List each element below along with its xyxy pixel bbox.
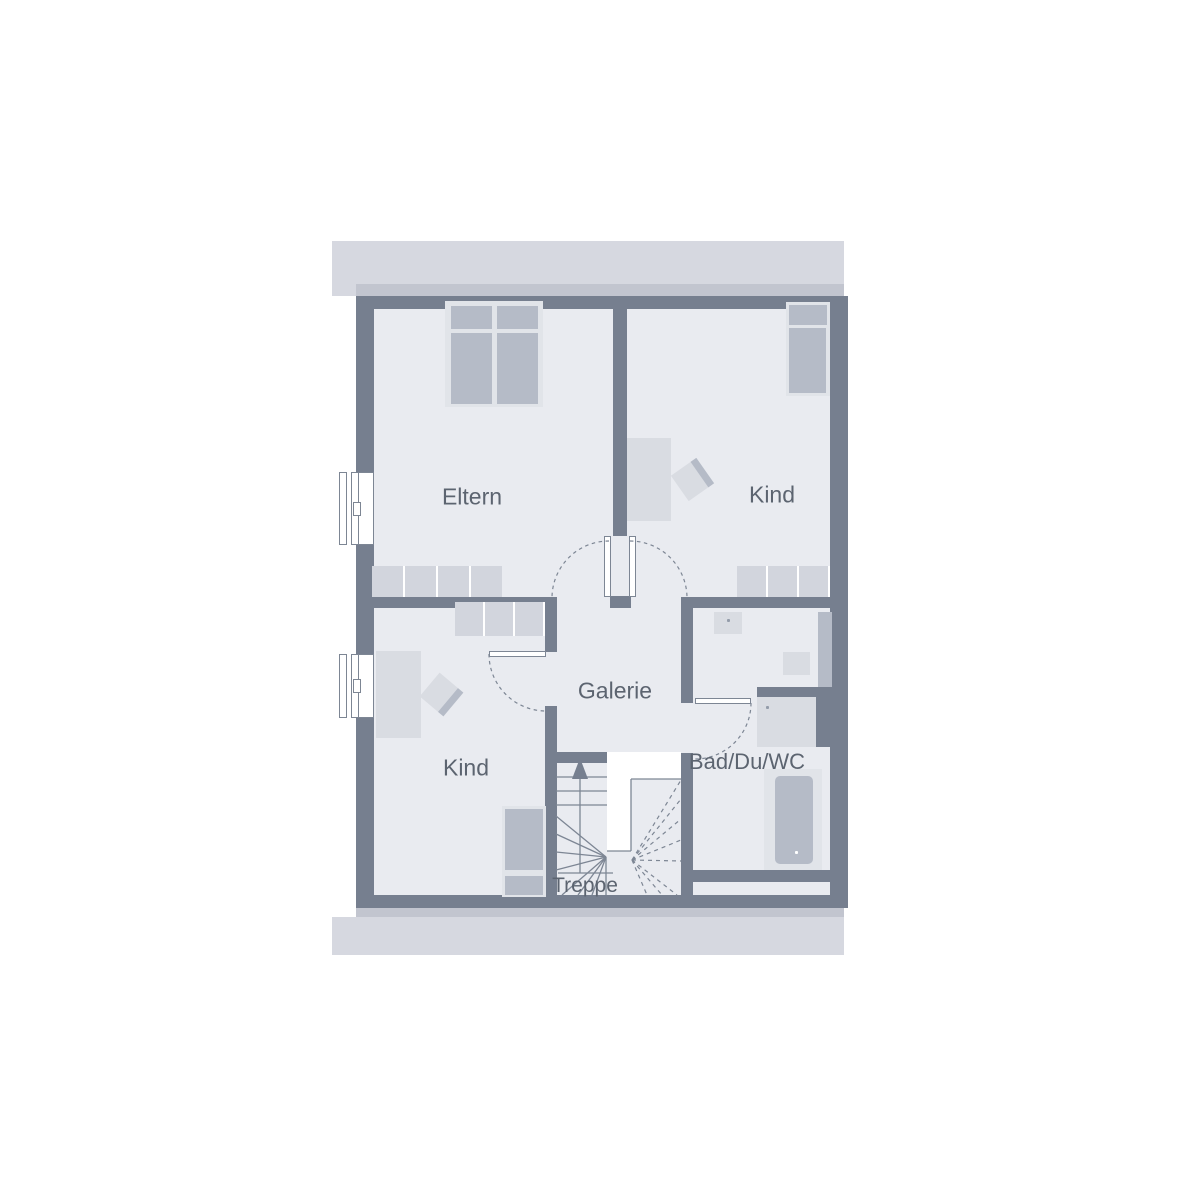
- bed-pillow: [497, 306, 538, 329]
- window-handle-icon: [353, 502, 361, 516]
- wall-bath-left-upper: [681, 608, 693, 703]
- exterior-wall-left: [356, 296, 374, 908]
- wall-bath-bottom: [693, 870, 830, 882]
- wall-kind-bottom-right-upper: [545, 597, 557, 652]
- door-leaf-kind-top: [629, 536, 636, 597]
- room-label-kind-top: Kind: [749, 482, 795, 509]
- window-sill-lower: [339, 654, 347, 718]
- wall-bath-duct: [816, 697, 830, 747]
- wardrobe-kind-bottom: [455, 602, 545, 636]
- cabinet-drawer: [505, 876, 543, 895]
- bed-mattress: [789, 328, 826, 393]
- shower: [757, 697, 816, 747]
- wall-bath-inner: [757, 687, 830, 697]
- bathtub-drain-dot: [795, 851, 798, 854]
- room-label-eltern: Eltern: [442, 484, 502, 511]
- door-leaf-kind-bottom: [489, 651, 546, 657]
- toilet-flush-dot: [727, 619, 730, 622]
- desk: [627, 438, 671, 521]
- cabinet-door: [505, 809, 543, 870]
- bed-mattress: [451, 333, 492, 404]
- washbasin: [783, 652, 810, 675]
- window-handle-icon: [353, 679, 361, 693]
- single-bed: [376, 651, 421, 738]
- stairwell-void-left: [607, 752, 631, 851]
- window-lower-icon: [351, 654, 374, 718]
- door-leaf-eltern: [604, 536, 611, 597]
- door-leaf-bath: [695, 698, 751, 704]
- roof-edge-top: [356, 284, 844, 296]
- bathtub: [775, 776, 813, 864]
- bed-pillow: [789, 305, 827, 325]
- shower-drain-dot: [766, 706, 769, 709]
- exterior-wall-top: [356, 296, 848, 309]
- bath-installation-wall: [818, 612, 832, 687]
- wall-kind-bottom-right-lower: [545, 706, 557, 895]
- wall-stair-top: [553, 752, 608, 763]
- roof-edge-bottom: [356, 907, 844, 917]
- exterior-wall-right: [830, 296, 848, 908]
- room-label-treppe: Treppe: [552, 874, 618, 898]
- room-label-bad: Bad/Du/WC: [689, 749, 805, 775]
- room-label-galerie: Galerie: [578, 678, 652, 705]
- bed-mattress: [497, 333, 538, 404]
- dresser-eltern: [372, 566, 502, 597]
- wall-center-vertical: [613, 309, 627, 536]
- wall-center-stub: [610, 596, 631, 608]
- bed-pillow: [451, 306, 492, 329]
- floor-plan-canvas: Eltern Kind Kind Galerie Treppe Bad/Du/W…: [0, 0, 1200, 1200]
- roof-overhang-bottom: [332, 917, 844, 955]
- toilet: [714, 612, 742, 634]
- window-upper-icon: [351, 472, 374, 545]
- wall-kind-top-bottom: [681, 597, 830, 608]
- dresser-kind-top: [737, 566, 830, 597]
- room-label-kind-bottom: Kind: [443, 755, 489, 782]
- window-sill-upper: [339, 472, 347, 545]
